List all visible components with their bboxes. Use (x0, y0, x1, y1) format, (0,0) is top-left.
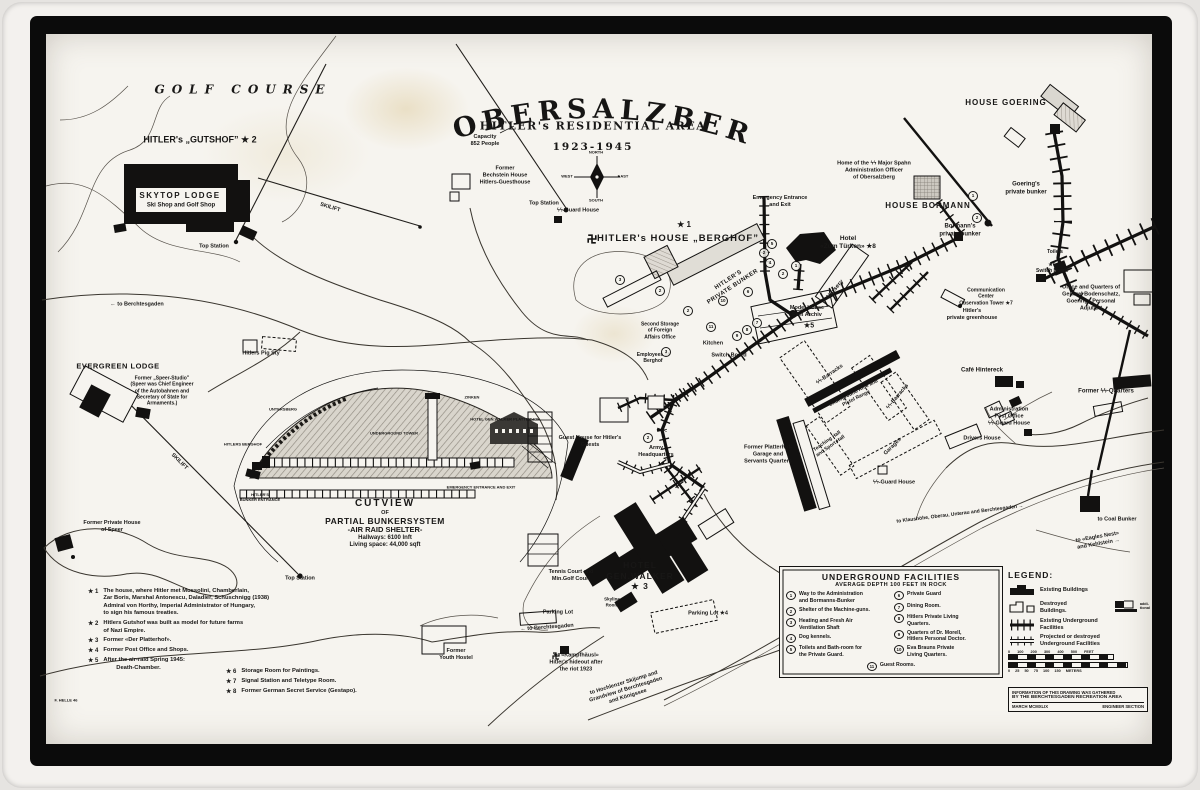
legend-projected-label: Projected or destroyed Underground Facil… (1040, 634, 1100, 647)
hotel-genwalker-label: HOTEL GEN.WALKER ★ 3 (606, 560, 674, 592)
footnote-text: Former Post Office and Shops. (103, 647, 188, 654)
kampfhaeusl-label: ★ «Kampfhäusl» Hitler's hideout after th… (549, 653, 602, 674)
uf-left-column: 1Way to the Administration and Bormanns-… (786, 591, 888, 661)
footnote-text: After the air-raid Spring 1945: Death-Ch… (103, 657, 185, 672)
bunker-room-number: 1 (791, 261, 801, 271)
bunker-room-number: 2 (972, 213, 982, 223)
footnotes-left: ★ 1The house, where Hitler met Mussolini… (88, 588, 269, 675)
skytop-lodge-label: SKYTOP LODGE (139, 191, 220, 201)
scanned-map-photo: .rd{fill:none;stroke:#3a362f;stroke-widt… (0, 0, 1200, 790)
uf-item-number: 1 (786, 591, 796, 600)
footnotes-right: ★ 6Storage Room for Paintings.★ 7Signal … (226, 668, 357, 698)
uf-item-number: 4 (786, 634, 796, 643)
skyline-room-label: Skyline Room (604, 596, 620, 607)
footnote-text: Hitlers Gutshof was built as model for f… (103, 620, 243, 635)
bunker-room-number: 10 (718, 296, 728, 306)
credit-line2: BY THE BERCHTESGADEN RECREATION AREA (1012, 695, 1144, 700)
uf-item: 2Shelter of the Machine-guns. (786, 607, 888, 616)
ss-guard-house-s-label: ϟϟ-Guard House (873, 480, 915, 487)
footnote-text: Storage Room for Paintings. (241, 668, 319, 675)
legend-title: LEGEND: (1008, 570, 1150, 580)
cutview-living-space: Living space: 44,000 sqft (325, 542, 445, 549)
uf-item-number: 2 (786, 607, 796, 616)
to-berchtesgaden-w: ← to Berchtesgaden (110, 302, 163, 309)
compass-west: WEST (561, 174, 573, 179)
model-house-label: Model House Film Archiv (790, 305, 824, 319)
ss-guard-house-berghof: ϟϟ-Guard House (557, 208, 599, 215)
uf-item-number: 6 (894, 591, 904, 600)
hotel-zum-tuerken-label: Hotel «Zum Türken» ★8 (820, 235, 876, 251)
bunker-room-number: 8 (742, 325, 752, 335)
uf-item-number: 8 (894, 614, 904, 623)
footnote: ★ 4Former Post Office and Shops. (88, 647, 269, 654)
speer-house-label: Former Private House of Speer (83, 520, 140, 534)
hitlers-gutshof-label: HITLER's „GUTSHOF” ★ 2 (143, 134, 256, 145)
parking-lot-4: Parking Lot ★4 (688, 611, 728, 618)
uf-item: 10Eva Brauns Private Living Quarters. (894, 645, 996, 658)
uf-item-number: 7 (894, 603, 904, 612)
bodenschatz-label: Office and Quarters of General Bodenscha… (1062, 284, 1120, 312)
uf-item: 5Toilets and Bath-room for the Private G… (786, 645, 888, 658)
cutview-zinken: ZINKEN (465, 395, 480, 400)
berghof-label: HITLER's HOUSE „BERGHOF” (597, 233, 759, 245)
footnote: ★ 2Hitlers Gutshof was built as model fo… (88, 620, 269, 635)
cutview-platterhof: HOTEL GEN.WALKER PLATTERHOF (470, 417, 539, 422)
bunker-tunnels (618, 118, 1156, 556)
tennis-court-label: Tennis Court and Min.Golf Court (549, 569, 594, 583)
kitchen-label: Kitchen (703, 341, 723, 348)
uf-item: 4Dog kennels. (786, 634, 888, 643)
administration-label: Administration Post Office ϟϟ-Guard Hous… (988, 407, 1030, 428)
footnote-mark: ★ 2 (88, 620, 98, 635)
bunker-room-number: 2 (643, 433, 653, 443)
cutview-tower: UNDERGROUND TOWER (370, 431, 418, 436)
cafe-hintereck-label: Café Hintereck (961, 367, 1003, 375)
footnote: ★ 7Signal Station and Teletype Room. (226, 678, 357, 685)
compass-rose (574, 156, 620, 198)
footnote: ★ 1The house, where Hitler met Mussolini… (88, 588, 269, 618)
second-storage-label: Second Storage of Foreign Affairs Office (641, 322, 679, 341)
house-bormann-label: HOUSE BORMANN (885, 201, 970, 211)
uf-item-text: Eva Brauns Private Living Quarters. (907, 645, 954, 658)
bunker-room-number: 1 (968, 191, 978, 201)
house-goering-label: HOUSE GOERING (965, 98, 1046, 108)
army-hq-label: Army Headquarters (638, 445, 673, 459)
speer-studio-note: Former „Speer-Studio” (Speer was Chief E… (130, 375, 193, 406)
uf-item-text: Private Guard (907, 591, 941, 598)
uf-right-column: 6Private Guard7Dining Room.8Hitlers Priv… (894, 591, 996, 661)
former-ss-quarters-label: Former ϟϟ-Quarters (1078, 388, 1134, 396)
spahn-home-label: Home of the ϟϟ Major Spahn Administratio… (837, 161, 911, 182)
cutview-shelter: -AIR RAID SHELTER- (325, 526, 445, 535)
uf-item: 7Dining Room. (894, 603, 996, 612)
uf-item-text: Hitlers Private Living Quarters. (907, 614, 959, 627)
bunker-room-number: 2 (759, 248, 769, 258)
footnote-text: Former «Der Platterhof». (103, 637, 171, 644)
bunker-room-number: 5 (767, 239, 777, 249)
footnote: ★ 6Storage Room for Paintings. (226, 668, 357, 675)
legend-underground-label: Existing Underground Facilities (1040, 618, 1098, 631)
footnote-mark: ★ 7 (226, 678, 236, 685)
signature: F. HELLE 46 (55, 698, 78, 703)
platterhof-garage-label: Former Platterhof- Garage and Servants Q… (744, 445, 792, 466)
uf-item-text: Shelter of the Machine-guns. (799, 607, 870, 614)
compass-north: NORTH (589, 150, 603, 155)
existing-building-icon (1008, 583, 1036, 597)
goerings-bunker-label: Goering's private bunker (1005, 182, 1046, 197)
bunker-room-number: 3 (615, 275, 625, 285)
cutview-title: CUTVIEW (325, 498, 445, 510)
golf-course-label: GOLF COURSE (154, 83, 331, 98)
bechstein-house-label: Former Bechstein House Hitlers-Guesthous… (480, 166, 531, 187)
uf-subtitle: AVERAGE DEPTH 100 FEET IN ROCK (786, 582, 996, 588)
switchboard-6-label: ★6 Switch Board (1036, 262, 1068, 275)
footnote-mark: ★ 4 (88, 647, 98, 654)
footnote-mark: ★ 6 (226, 668, 236, 675)
scale-bar-feet (1008, 654, 1114, 660)
bunker-room-number: 6 (743, 287, 753, 297)
emergency-entrance-label: Emergency Entrance and Exit (753, 195, 808, 209)
legend-destroyed-label: Destroyed Buildings. (1040, 601, 1067, 614)
footnote: ★ 8Former German Secret Service (Gestapo… (226, 688, 357, 695)
projected-underground-icon (1008, 635, 1036, 647)
existing-underground-icon (1008, 619, 1036, 631)
guest-house-label: Guest House for Hitler's Guests (559, 435, 622, 449)
compass-east: EAST (618, 174, 629, 179)
parking-lot-w: Parking Lot (543, 610, 573, 617)
uf-item: 8Hitlers Private Living Quarters. (894, 614, 996, 627)
bunker-room-number: 3 (661, 347, 671, 357)
credit-box: INFORMATION OF THIS DRAWING WAS GATHERED… (1008, 687, 1148, 712)
legend-existing-label: Existing Buildings (1040, 587, 1088, 594)
skytop-lodge-sub: Ski Shop and Golf Shop (147, 202, 215, 210)
uf-item-text: Guest Rooms. (880, 662, 915, 669)
uf-item-number: 10 (894, 645, 904, 654)
uf-item: 9Quarters of Dr. Morell, Hitlers Persona… (894, 630, 996, 643)
bunker-room-number: 11 (706, 322, 716, 332)
drivers-house-label: Drivers House (963, 436, 1000, 443)
cutview-untersberg: UNTERSBERG (269, 407, 297, 412)
destroyed-building-icon (1008, 600, 1036, 615)
underground-facilities-box: UNDERGROUND FACILITIES AVERAGE DEPTH 100… (779, 566, 1003, 678)
bunker-room-number: 2 (683, 306, 693, 316)
additional-building-icon (1113, 598, 1139, 614)
comm-center-label: Communication Center Observation Tower ★… (959, 288, 1013, 307)
uf-item-number: 11 (867, 662, 877, 671)
credit-date: MARCH MCMXLIX (1012, 704, 1048, 709)
model-house-star: ★5 (804, 323, 814, 332)
footnote-text: The house, where Hitler met Mussolini, C… (103, 588, 269, 618)
footnote: ★ 3Former «Der Platterhof». (88, 637, 269, 644)
credit-section: ENGINEER SECTION (1102, 704, 1144, 709)
footnote-mark: ★ 3 (88, 637, 98, 644)
footnote-mark: ★ 1 (88, 588, 98, 618)
bunker-room-number: 7 (752, 318, 762, 328)
uf-title: UNDERGROUND FACILITIES (786, 572, 996, 582)
bormanns-bunker-label: Bormann's private bunker (939, 224, 980, 239)
bunker-room-number: 2 (778, 269, 788, 279)
bunker-room-number: 9 (732, 331, 742, 341)
coal-bunker-label: to Coal Bunker (1097, 517, 1136, 524)
cutview-emergency: EMERGENCY ENTRANCE AND EXIT (447, 485, 516, 490)
uf-item-text: Dog kennels. (799, 634, 831, 641)
pig-sty-label: Hitlers Pig Sty (242, 351, 279, 358)
uf-item: 11Guest Rooms. (867, 662, 915, 671)
cutview-hallways: Hallways: 6100 lnft (325, 535, 445, 542)
uf-item-text: Dining Room. (907, 603, 941, 610)
top-station-center: Top Station (529, 201, 559, 208)
legend: LEGEND: Existing Buildings Destroyed Bui… (1008, 570, 1150, 673)
scale-meters-labels: 0 25 50 75 100 150 METERS (1008, 669, 1150, 673)
uf-item-number: 5 (786, 645, 796, 654)
scale-feet-labels: 0 100 200 300 400 500 FEET (1008, 650, 1150, 654)
cutview-entrance: HITLER'S BUNKER ENTRANCE (240, 492, 280, 502)
footnote-mark: ★ 5 (88, 657, 98, 672)
youth-hostel-label: Former Youth Hostel (439, 648, 473, 662)
toilets-label: Toilets (1047, 249, 1063, 255)
bunker-room-number: 4 (765, 258, 775, 268)
cutview-berghof: HITLERS BERGHOF (224, 442, 262, 447)
greenhouse-label: Hitler's private greenhouse (947, 308, 998, 322)
map-subtitle: HITLER's RESIDENTIAL AREA (480, 120, 707, 133)
top-station-nw: Top Station (199, 244, 229, 251)
bunker-room-number: 2 (655, 286, 665, 296)
footnote-mark: ★ 8 (226, 688, 236, 695)
legend-additional-note: addi- tional (1140, 602, 1150, 610)
uf-bottom-row: 11Guest Rooms. (786, 662, 996, 674)
uf-item-text: Quarters of Dr. Morell, Hitlers Personal… (907, 630, 966, 643)
berghof-star: ★ 1 (677, 220, 691, 230)
compass-south: SOUTH (589, 198, 603, 203)
uf-item-text: Way to the Administration and Bormanns-B… (799, 591, 863, 604)
uf-item-text: Toilets and Bath-room for the Private Gu… (799, 645, 862, 658)
evergreen-lodge-label: EVERGREEN LODGE (76, 361, 159, 370)
capacity-note: Capacity 852 People (471, 134, 500, 148)
top-station-sw: Top Station (285, 576, 315, 583)
footnote-text: Former German Secret Service (Gestapo). (241, 688, 356, 695)
scale-bar-meters (1008, 662, 1128, 668)
uf-item: 6Private Guard (894, 591, 996, 600)
uf-item: 3Heating and Fresh Air Ventilation Shaft (786, 618, 888, 631)
cutview-caption: CUTVIEW OF PARTIAL BUNKERSYSTEM -AIR RAI… (325, 498, 445, 549)
uf-item-text: Heating and Fresh Air Ventilation Shaft (799, 618, 853, 631)
uf-item-number: 3 (786, 618, 796, 627)
uf-item-number: 9 (894, 630, 904, 639)
footnote-text: Signal Station and Teletype Room. (241, 678, 336, 685)
switchboard-center-label: Switch Board (711, 353, 746, 360)
uf-item: 1Way to the Administration and Bormanns-… (786, 591, 888, 604)
